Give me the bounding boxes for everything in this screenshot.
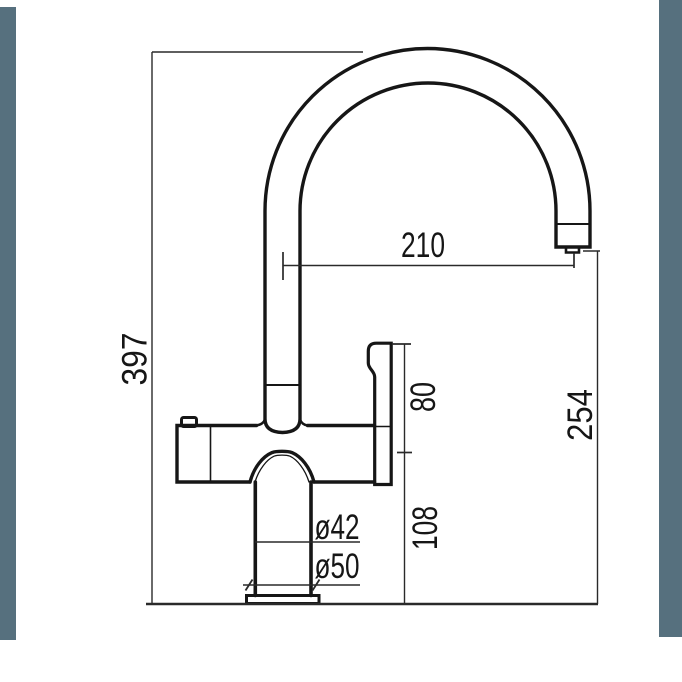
label-base-diameter: ø50 (315, 547, 360, 586)
label-total-height: 397 (116, 333, 155, 386)
body-bar-outline (177, 426, 375, 483)
faucet-outline (177, 49, 590, 604)
page-edge-left (0, 7, 16, 640)
body-dome (250, 451, 314, 482)
faucet-dimension-diagram: 210 397 80 108 254 ø42 ø50 (0, 0, 682, 682)
base-flange (247, 596, 320, 604)
handle-button (182, 418, 197, 427)
technical-drawing-canvas: 210 397 80 108 254 ø42 ø50 (0, 0, 682, 682)
label-lower-body-height: 108 (406, 506, 445, 550)
label-outlet-height: 254 (561, 389, 600, 441)
label-handle-height: 80 (404, 382, 443, 412)
label-spout-reach: 210 (401, 226, 445, 265)
lever-handle-outline (368, 343, 391, 484)
dimension-labels: 210 397 80 108 254 ø42 ø50 (116, 226, 601, 586)
page-edge-right (659, 0, 682, 637)
label-body-diameter: ø42 (315, 508, 360, 547)
column-walls (255, 482, 311, 596)
